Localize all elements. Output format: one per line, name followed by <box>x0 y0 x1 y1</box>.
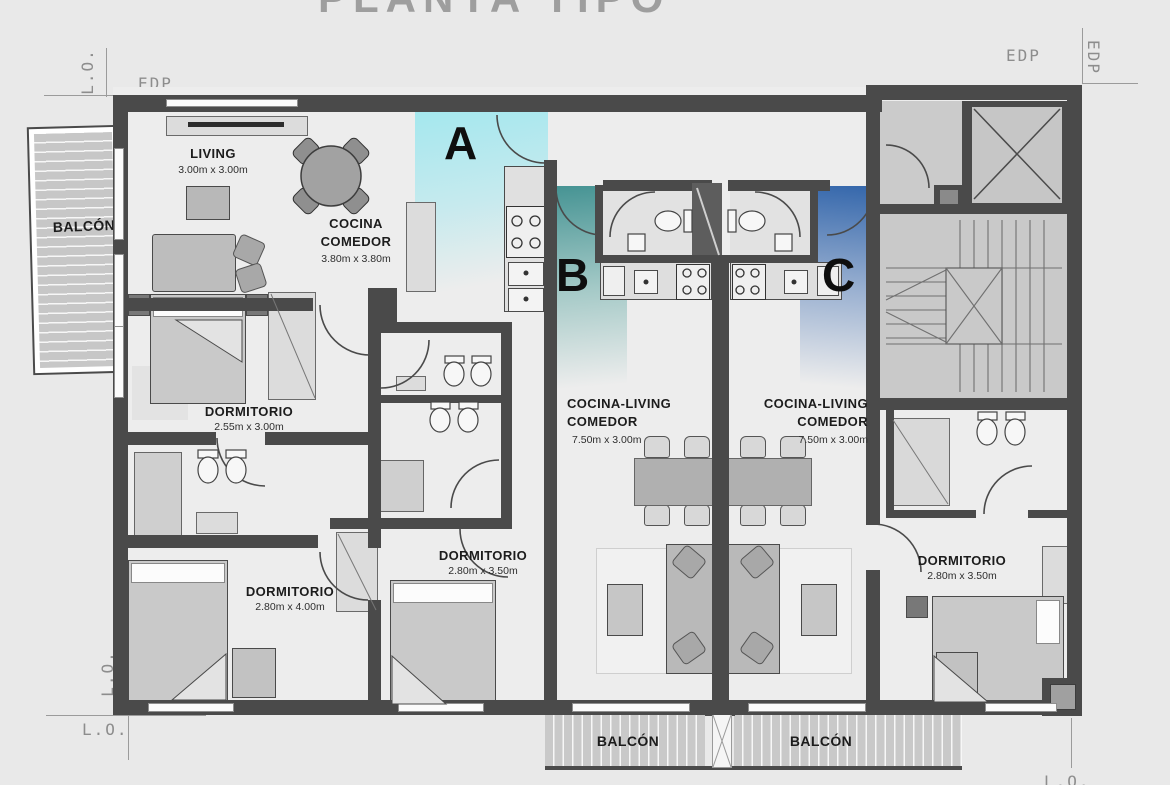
side-table <box>186 186 230 220</box>
dining-table-c <box>728 458 812 506</box>
dims-cocina: 3.80m x 3.80m <box>321 253 390 265</box>
window <box>114 148 124 240</box>
window <box>114 326 124 398</box>
wall-bath-b-left <box>595 185 603 263</box>
wall-a-b <box>544 160 557 710</box>
bathroom-c <box>730 191 810 255</box>
wall-cbath-left <box>886 410 894 518</box>
chair <box>684 436 710 458</box>
exterior-wall-top-right <box>866 85 1082 100</box>
room-label-dormitorio-a1: DORMITORIO <box>205 404 293 419</box>
wall-hall-vertical-lower <box>368 600 381 713</box>
pillow <box>393 583 493 603</box>
balcony-door-c <box>748 703 866 712</box>
ref-line <box>1082 83 1138 84</box>
room-label-balcon-b: BALCÓN <box>597 733 659 749</box>
ref-line <box>106 48 107 97</box>
window <box>398 703 484 712</box>
wall-b-c <box>712 255 729 705</box>
chair <box>684 504 710 526</box>
window <box>166 99 298 107</box>
chair <box>780 504 806 526</box>
bathroom-b <box>603 191 692 255</box>
sofa-b <box>666 544 718 674</box>
wall-bed1-bath <box>113 432 216 445</box>
wall-midbath-top <box>368 322 512 333</box>
balcony-rail <box>545 766 962 770</box>
dims-cocina-living-c: 7.50m x 3.00m <box>799 434 868 446</box>
dims-living: 3.00m x 3.00m <box>178 164 247 176</box>
fridge-b <box>603 266 625 296</box>
dims-dormitorio-a2: 2.80m x 4.00m <box>255 601 324 613</box>
plan-title: PLANTA TIPO <box>318 0 670 22</box>
wall-cbath-bottom-r <box>1028 510 1068 518</box>
sink-b <box>634 270 658 294</box>
dims-cocina-living-b: 7.50m x 3.00m <box>572 434 641 446</box>
dresser-a2 <box>232 648 276 698</box>
wall-c-stairs-upper <box>866 85 880 525</box>
balcony-left-deck <box>34 132 118 368</box>
dims-dormitorio-a1: 2.55m x 3.00m <box>214 421 283 433</box>
dims-dormitorio-c: 2.80m x 3.50m <box>927 570 996 582</box>
vanity-a1 <box>196 512 238 534</box>
room-label-dormitorio-a3: DORMITORIO <box>439 548 527 563</box>
window <box>148 703 234 712</box>
closet-c-bath <box>892 418 950 506</box>
tv-unit-c <box>801 584 837 636</box>
unit-label-a: A <box>444 120 477 166</box>
ref-label-lo-bottom-left: L.O. <box>82 720 129 739</box>
balcony-divider-column <box>712 714 732 768</box>
room-label-dormitorio-a2: DORMITORIO <box>246 584 334 599</box>
room-label-balcon-c: BALCÓN <box>790 733 852 749</box>
room-label-cocina-2: COMEDOR <box>321 234 392 249</box>
nightstand <box>906 596 928 618</box>
room-label-living: LIVING <box>190 146 236 161</box>
shower-a1 <box>134 452 182 536</box>
ref-line <box>1071 718 1072 768</box>
ref-label-lo-bottom-right: L.O. <box>1044 772 1091 785</box>
wall-bath-b-bottom <box>595 255 715 263</box>
room-label-cocina-living-c2: COMEDOR <box>797 414 868 429</box>
room-label-cocina-living-b1: COCINA-LIVING <box>567 396 671 411</box>
wall-bed3-top <box>330 518 512 529</box>
stove-a <box>506 206 546 258</box>
chair <box>740 504 766 526</box>
wall-bath-divider <box>692 183 722 260</box>
ref-label-lo-top-left: L.O. <box>78 48 97 95</box>
wall-cbath-bottom-l <box>886 510 976 518</box>
room-label-cocina-living-b2: COMEDOR <box>567 414 638 429</box>
sofa-a <box>152 234 236 292</box>
room-label-cocina-living-c1: COCINA-LIVING <box>764 396 868 411</box>
wall-hall-elevator <box>962 101 970 209</box>
unit-label-b: B <box>556 252 589 298</box>
sink-a <box>508 262 544 286</box>
unit-label-c: C <box>822 252 855 298</box>
room-label-balcon-left: BALCÓN <box>53 217 116 235</box>
wall-stairs-bedroom <box>878 398 1082 410</box>
wall-bath-c-bottom <box>722 255 818 263</box>
chair <box>644 436 670 458</box>
wall-midbath-divider <box>368 395 512 403</box>
window <box>985 703 1057 712</box>
wall-midbath-right <box>501 322 512 529</box>
tv-unit-b <box>607 584 643 636</box>
kitchen-cabinet-a <box>406 202 436 292</box>
sofa-c <box>728 544 780 674</box>
balcony-left <box>27 125 125 375</box>
sink-bath-upper <box>396 376 426 391</box>
dresser-c <box>936 652 978 702</box>
dining-table-b <box>634 458 718 506</box>
elevator-shaft <box>966 101 1068 209</box>
ref-line <box>44 95 118 96</box>
ref-line <box>46 715 206 716</box>
ref-label-edp-top-right: EDP <box>1006 46 1041 65</box>
pillow <box>131 563 225 583</box>
room-label-dormitorio-c: DORMITORIO <box>918 553 1006 568</box>
tv-screen <box>188 122 284 127</box>
balcony-door-b <box>572 703 690 712</box>
wall-living-bed1 <box>113 298 313 311</box>
wall-c-stairs-lower <box>866 570 880 715</box>
wall-bath-c-right <box>810 185 818 263</box>
stove-b <box>676 264 710 300</box>
floor-plan-canvas: PLANTA TIPO L.O. EDP EDP EDP L.O. L.O. L… <box>0 0 1170 785</box>
shower-bath-lower <box>378 460 424 512</box>
sink-c <box>784 270 808 294</box>
ref-label-edp-top-right-vertical: EDP <box>1084 40 1103 75</box>
chair <box>740 436 766 458</box>
ref-line <box>1082 28 1083 84</box>
pillow <box>1036 600 1060 644</box>
room-label-cocina-1: COCINA <box>329 216 383 231</box>
wall-hall-stairs <box>880 204 1068 214</box>
stove-c <box>732 264 766 300</box>
dims-dormitorio-a3: 2.80m x 3.50m <box>448 565 517 577</box>
staircase <box>878 214 1068 398</box>
chair <box>644 504 670 526</box>
sink-a2 <box>508 288 544 312</box>
wall-bed1-bath2 <box>265 432 368 445</box>
wall-bath-bed2 <box>113 535 318 548</box>
